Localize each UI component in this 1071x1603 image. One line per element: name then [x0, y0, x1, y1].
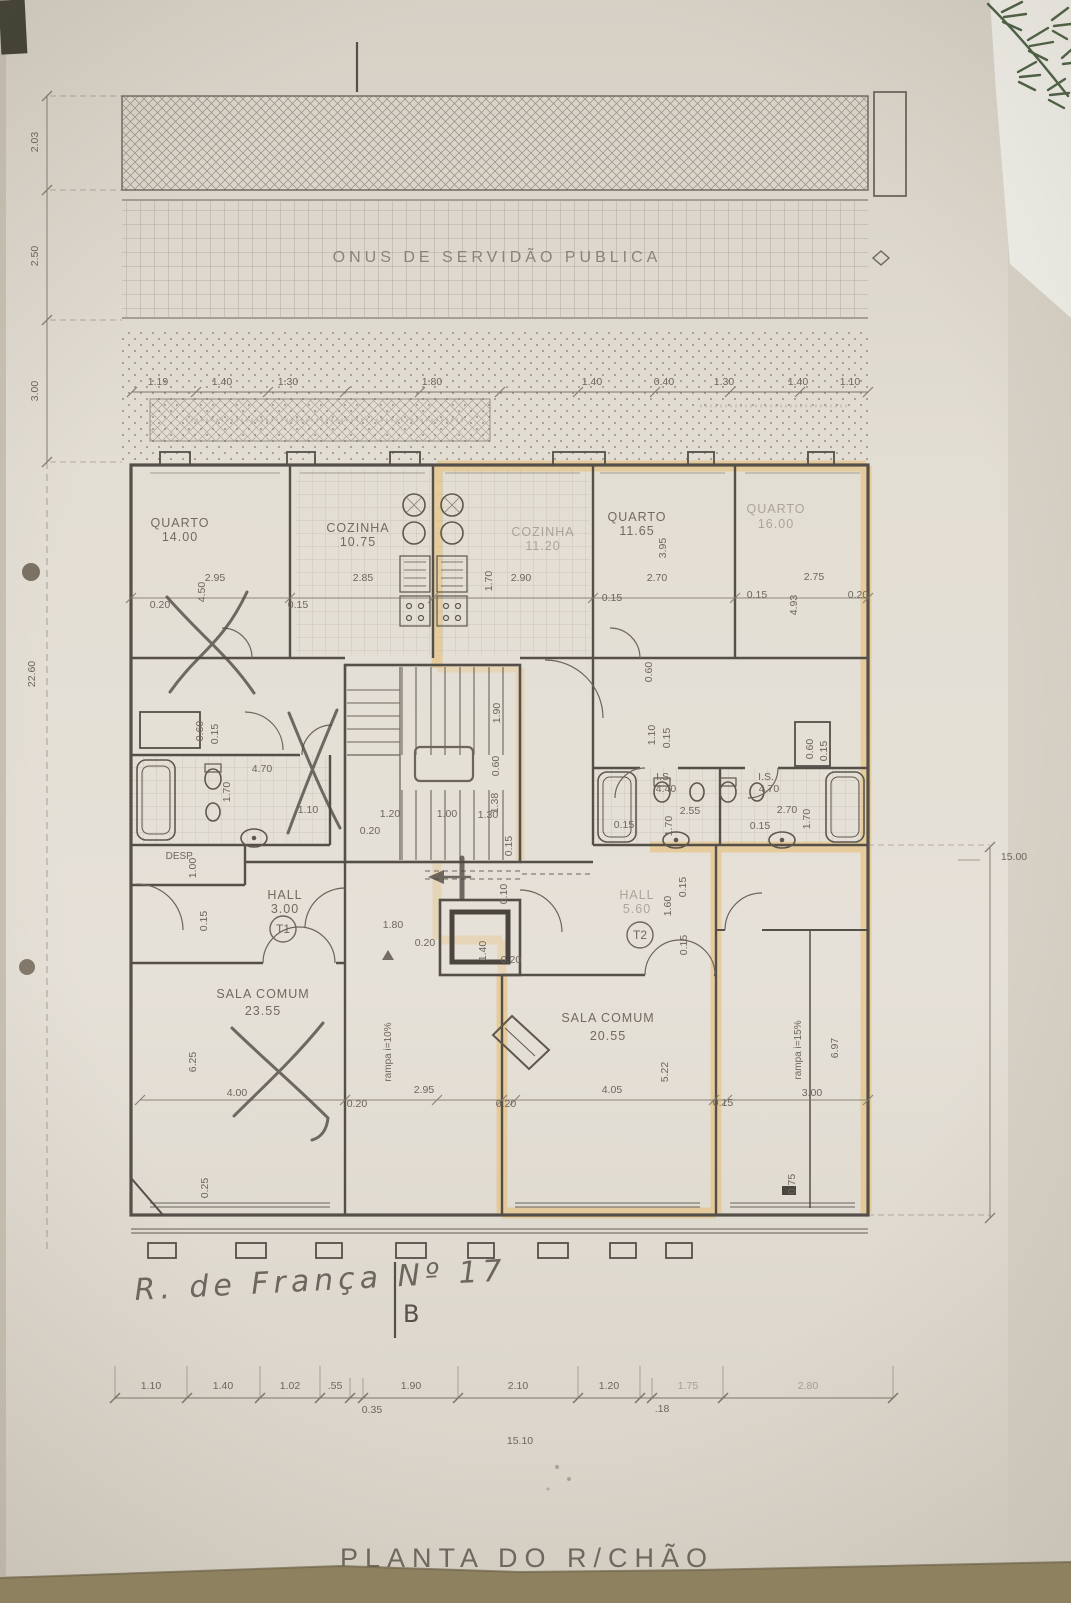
floor-plan-photo: T1 T2 ONUS DE SERVIDÃO PUBLICA R. de Fra… — [0, 0, 1071, 1603]
photo-vignette — [0, 0, 1071, 1603]
floor-plan-drawing: T1 T2 ONUS DE SERVIDÃO PUBLICA R. de Fra… — [0, 0, 1071, 1603]
punch-hole — [19, 959, 35, 975]
punch-hole — [22, 563, 40, 581]
